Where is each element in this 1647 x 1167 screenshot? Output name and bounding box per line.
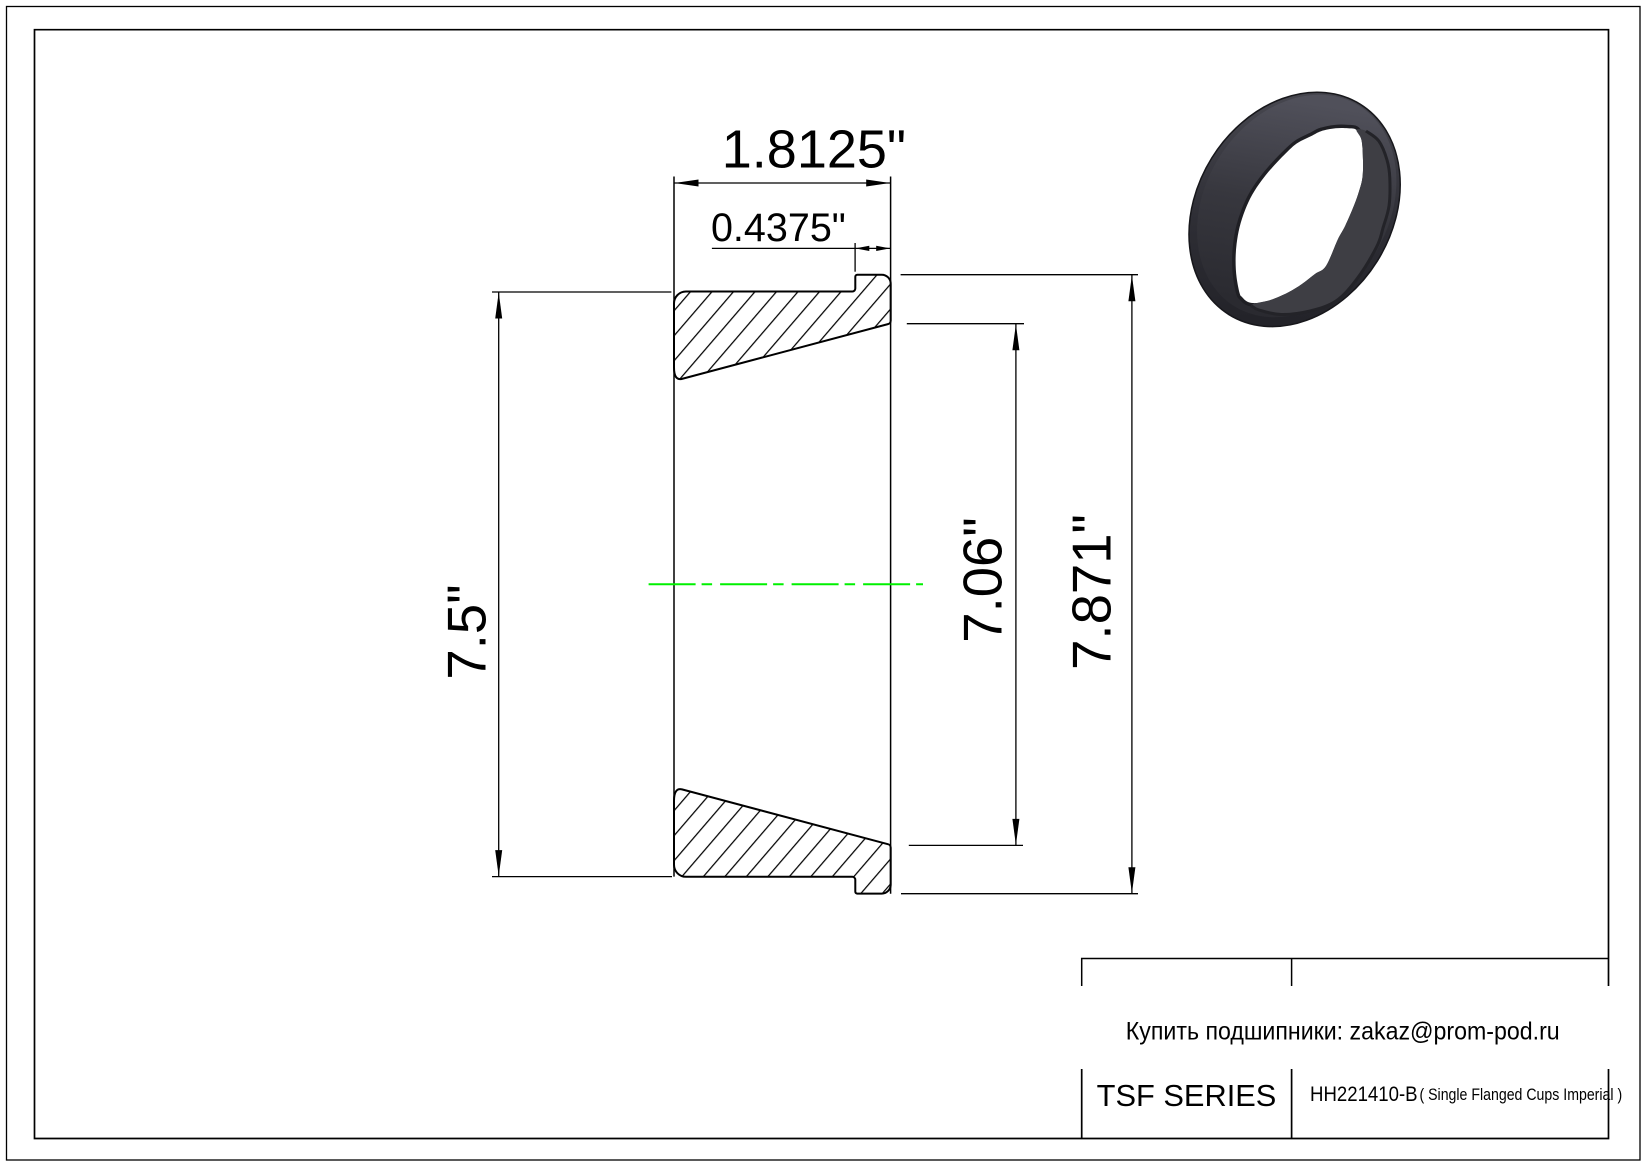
- svg-text:HH221410-B: HH221410-B: [1310, 1083, 1418, 1106]
- svg-text:Купить подшипники: zakaz@prom-: Купить подшипники: zakaz@prom-pod.ru: [1126, 1018, 1560, 1046]
- svg-text:7.06": 7.06": [953, 517, 1014, 642]
- svg-text:7.5": 7.5": [436, 584, 497, 679]
- svg-text:1.8125": 1.8125": [722, 119, 906, 179]
- svg-text:0.4375": 0.4375": [711, 206, 846, 250]
- svg-text:( Single Flanged Cups Imperial: ( Single Flanged Cups Imperial ): [1420, 1086, 1623, 1104]
- svg-text:7.871": 7.871": [1061, 514, 1122, 670]
- svg-text:TSF SERIES: TSF SERIES: [1097, 1078, 1277, 1113]
